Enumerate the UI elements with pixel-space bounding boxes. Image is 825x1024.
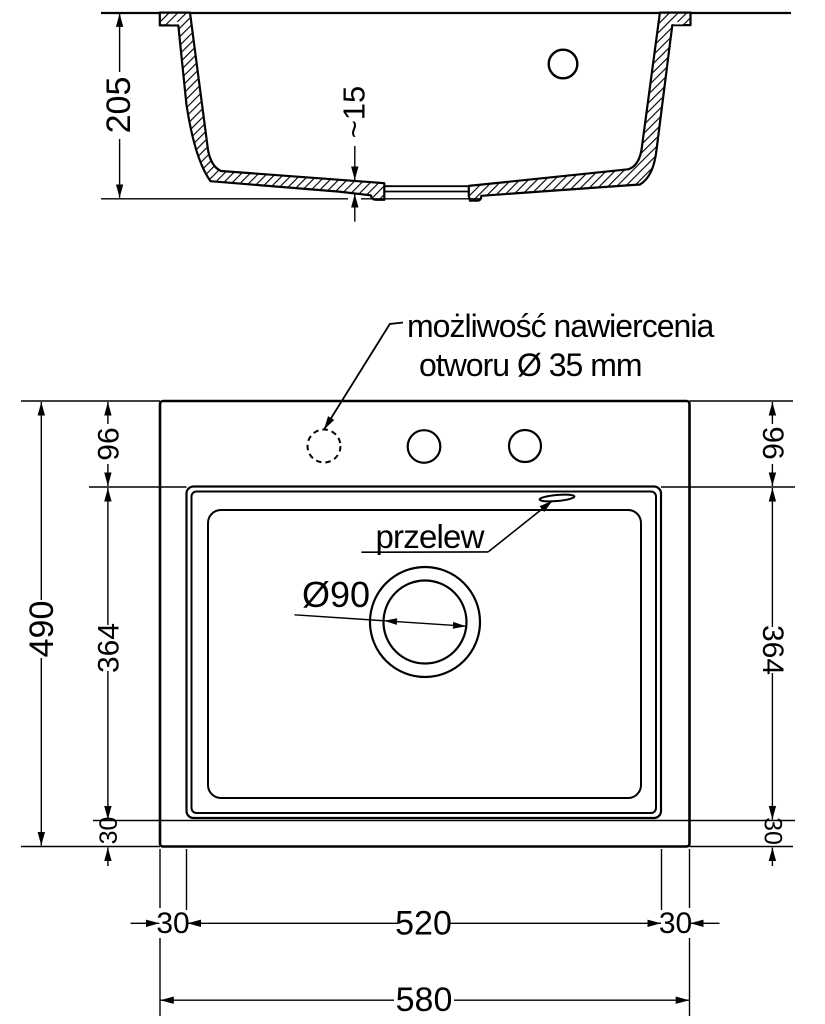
svg-text:30: 30 — [95, 817, 123, 845]
svg-text:Ø90: Ø90 — [302, 574, 370, 615]
svg-text:364: 364 — [756, 625, 789, 675]
svg-text:możliwość nawiercenia: możliwość nawiercenia — [407, 308, 714, 344]
svg-text:520: 520 — [395, 904, 452, 942]
svg-text:30: 30 — [156, 907, 189, 940]
svg-text:205: 205 — [100, 77, 138, 134]
svg-text:przelew: przelew — [376, 518, 485, 555]
svg-text:30: 30 — [759, 817, 787, 845]
svg-text:30: 30 — [659, 907, 692, 940]
svg-text:580: 580 — [396, 981, 453, 1019]
svg-text:~15: ~15 — [337, 86, 372, 139]
svg-text:364: 364 — [93, 623, 126, 673]
svg-text:96: 96 — [93, 427, 126, 460]
svg-text:490: 490 — [23, 601, 61, 658]
svg-text:otworu Ø 35 mm: otworu Ø 35 mm — [419, 347, 642, 383]
svg-text:96: 96 — [756, 426, 789, 459]
